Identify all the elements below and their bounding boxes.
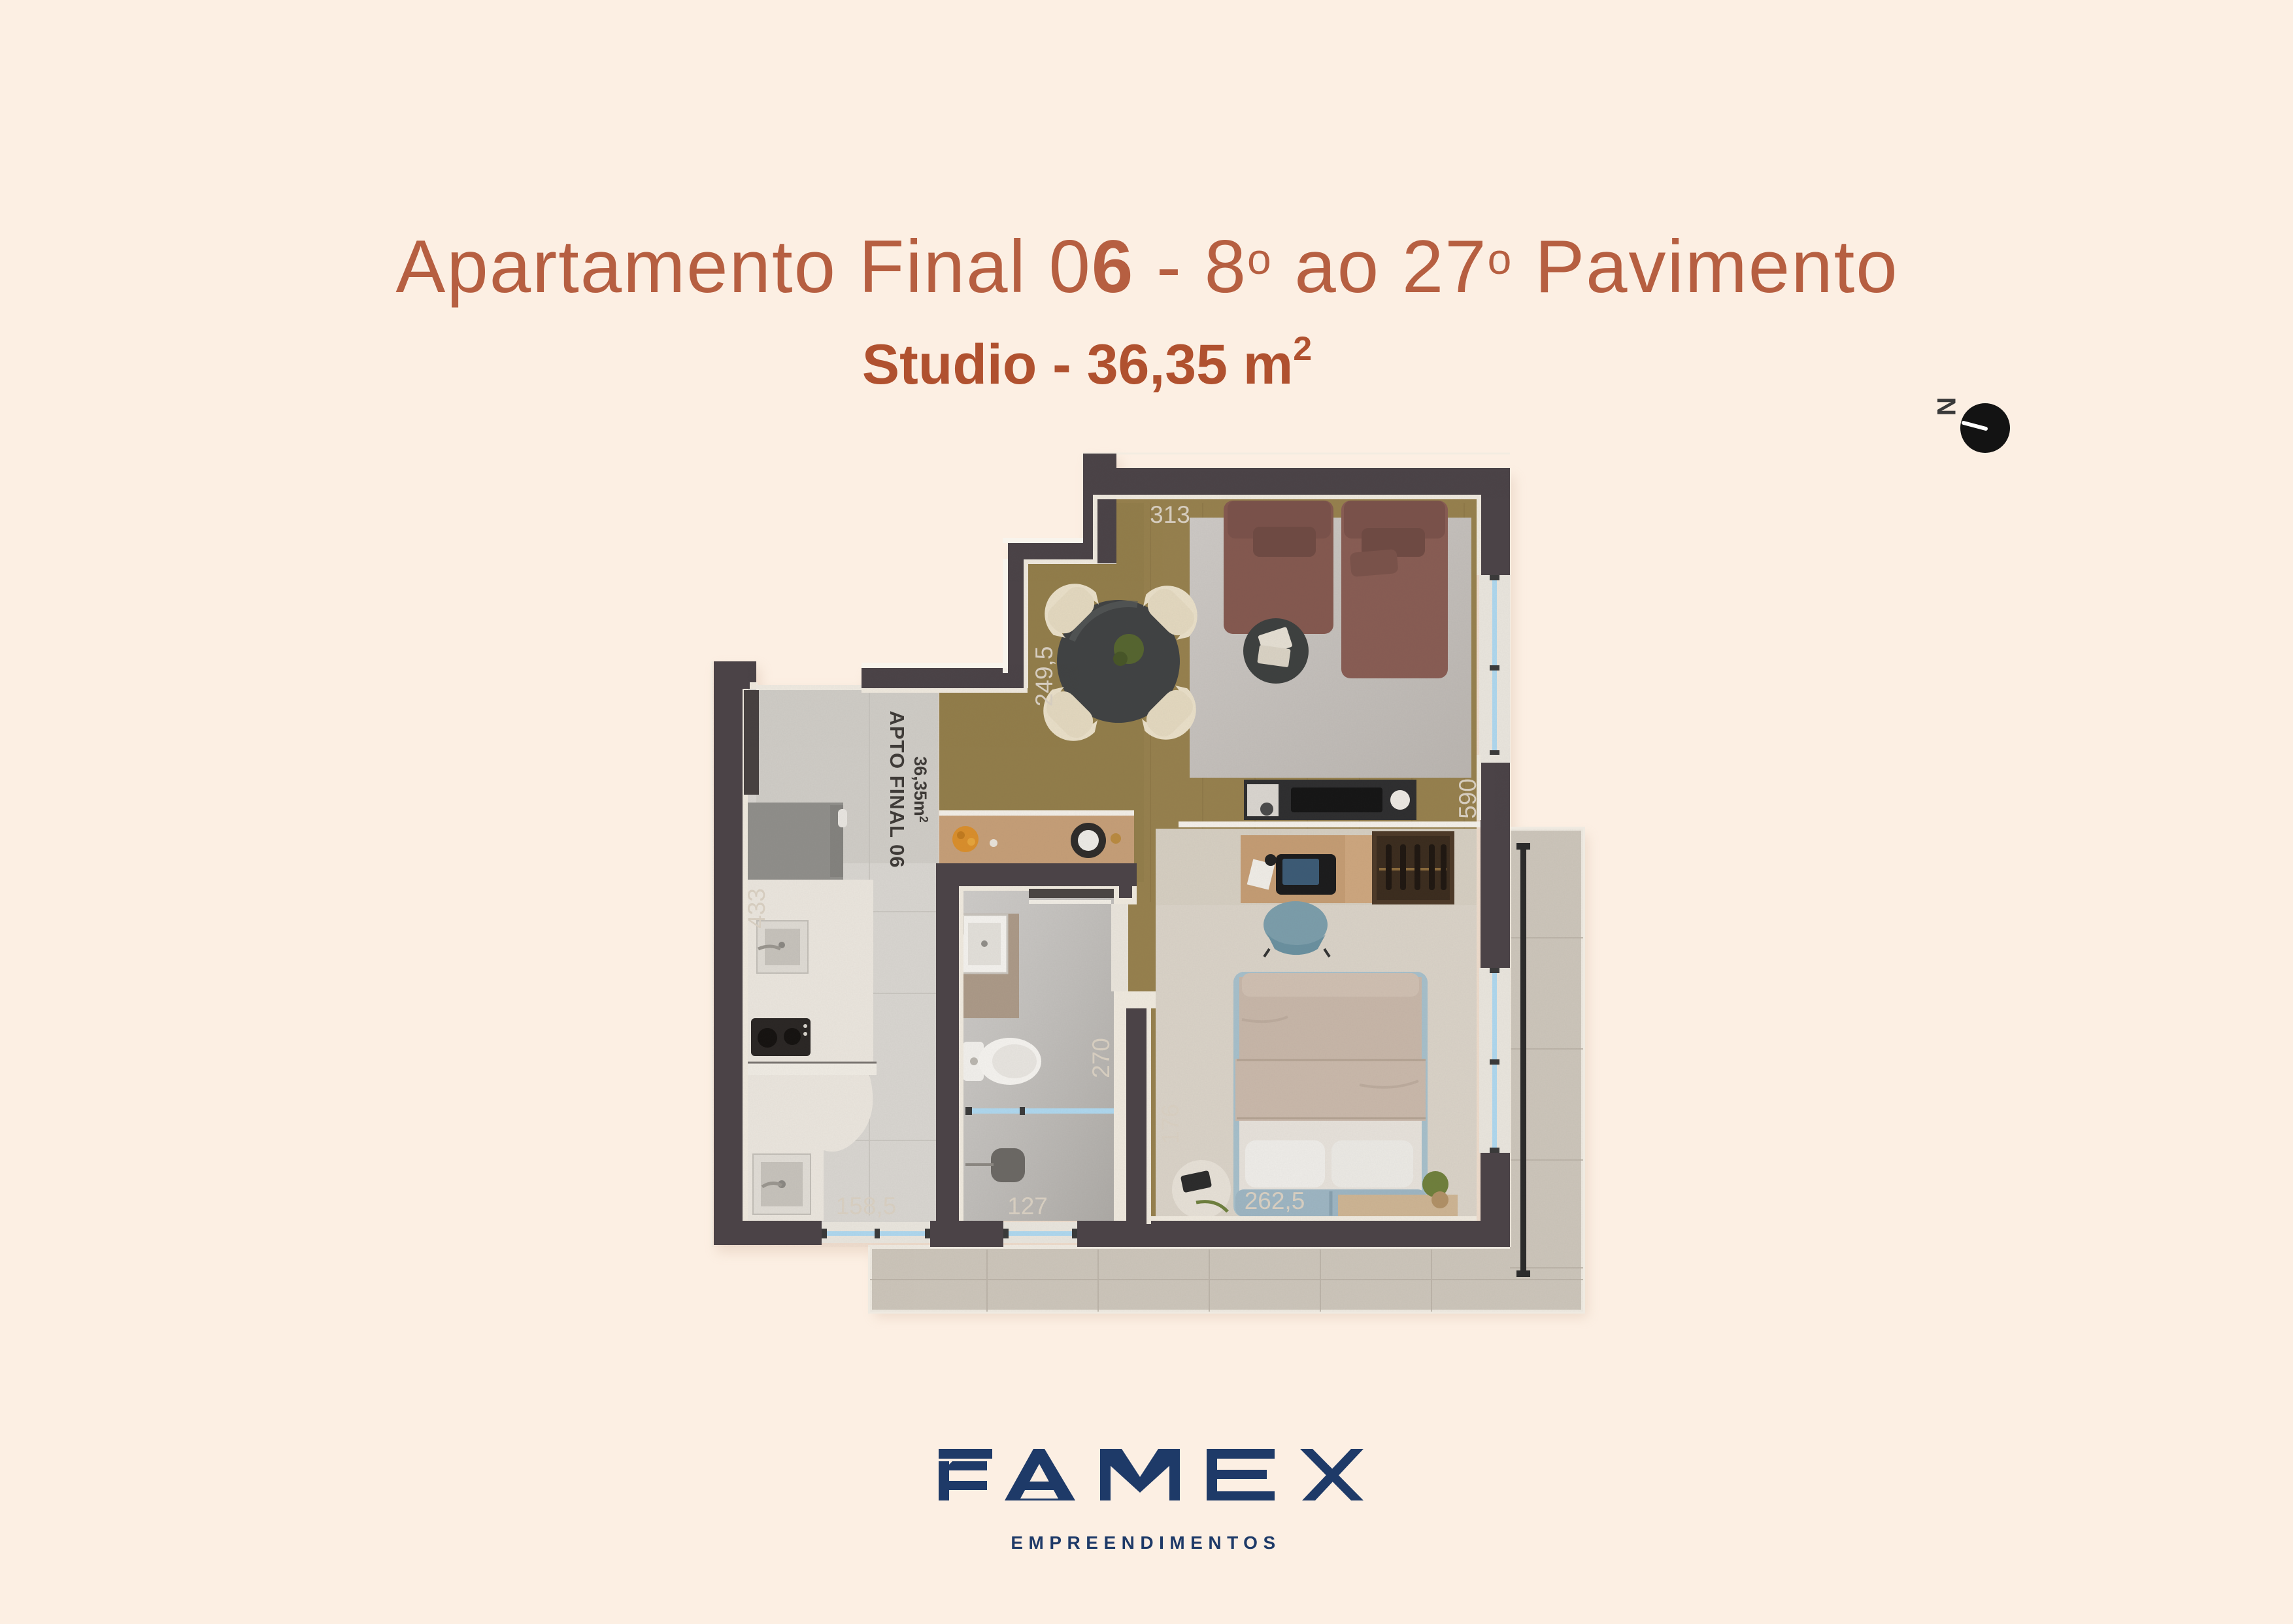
svg-text:Apartamento Final 06 - 8o ao 2: Apartamento Final 06 - 8o ao 27o Pavimen… [395, 225, 1898, 308]
svg-text:Studio - 36,35 m2: Studio - 36,35 m2 [862, 330, 1312, 396]
svg-text:N: N [1932, 397, 1960, 416]
svg-text:EMPREENDIMENTOS: EMPREENDIMENTOS [1011, 1533, 1280, 1553]
svg-text:APTO FINAL 06: APTO FINAL 06 [886, 711, 909, 869]
svg-text:36,35m2: 36,35m2 [911, 756, 930, 823]
